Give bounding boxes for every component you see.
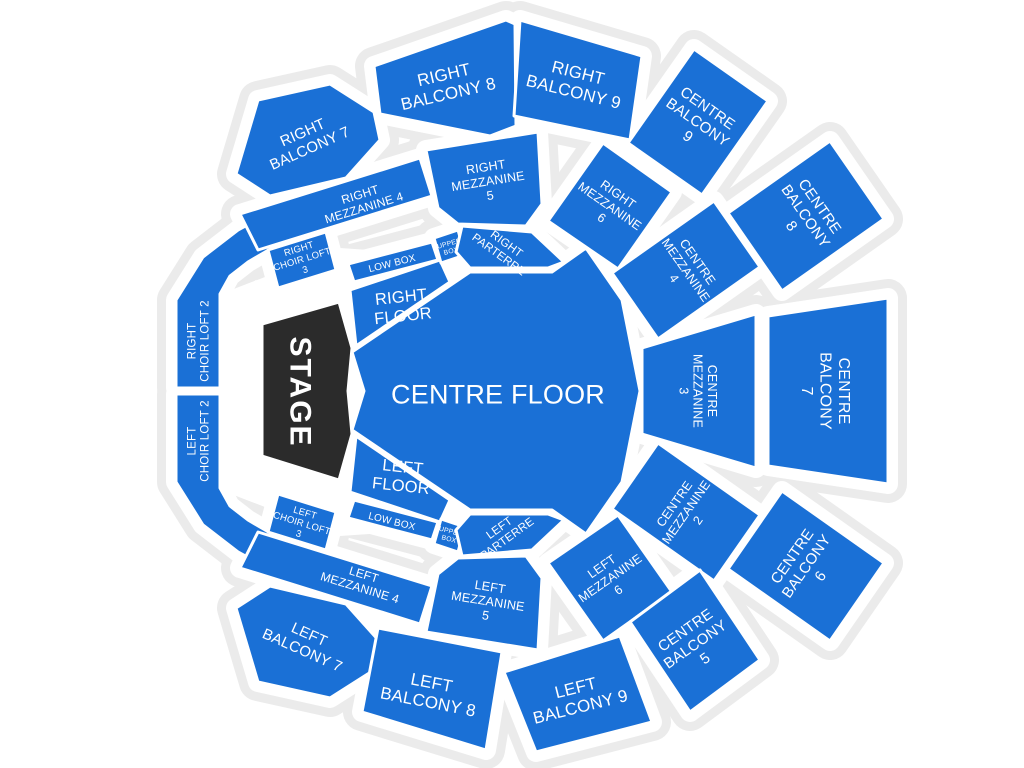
sections-layer: CENTRE FLOORRIGHTFLOORLEFTFLOORLOW BOXLO…	[176, 20, 888, 752]
venue-seat-map: CENTRE FLOORRIGHTFLOORLEFTFLOORLOW BOXLO…	[0, 0, 1024, 768]
section-left-balcony-9[interactable]	[504, 636, 652, 752]
section-right-balcony-8[interactable]	[374, 20, 516, 136]
stage-block	[262, 302, 352, 480]
seat-map-canvas: CENTRE FLOORRIGHTFLOORLEFTFLOORLOW BOXLO…	[0, 0, 1024, 768]
section-left-balcony-8[interactable]	[362, 628, 502, 750]
section-right-mezzanine-5[interactable]	[426, 132, 542, 226]
section-left-parterre[interactable]	[456, 514, 564, 556]
section-centre-balcony-7[interactable]	[768, 298, 888, 484]
section-right-balcony-9[interactable]	[514, 20, 642, 140]
section-right-parterre[interactable]	[456, 226, 564, 268]
section-left-mezzanine-5[interactable]	[426, 556, 542, 650]
section-centre-balcony-9[interactable]	[628, 49, 768, 195]
